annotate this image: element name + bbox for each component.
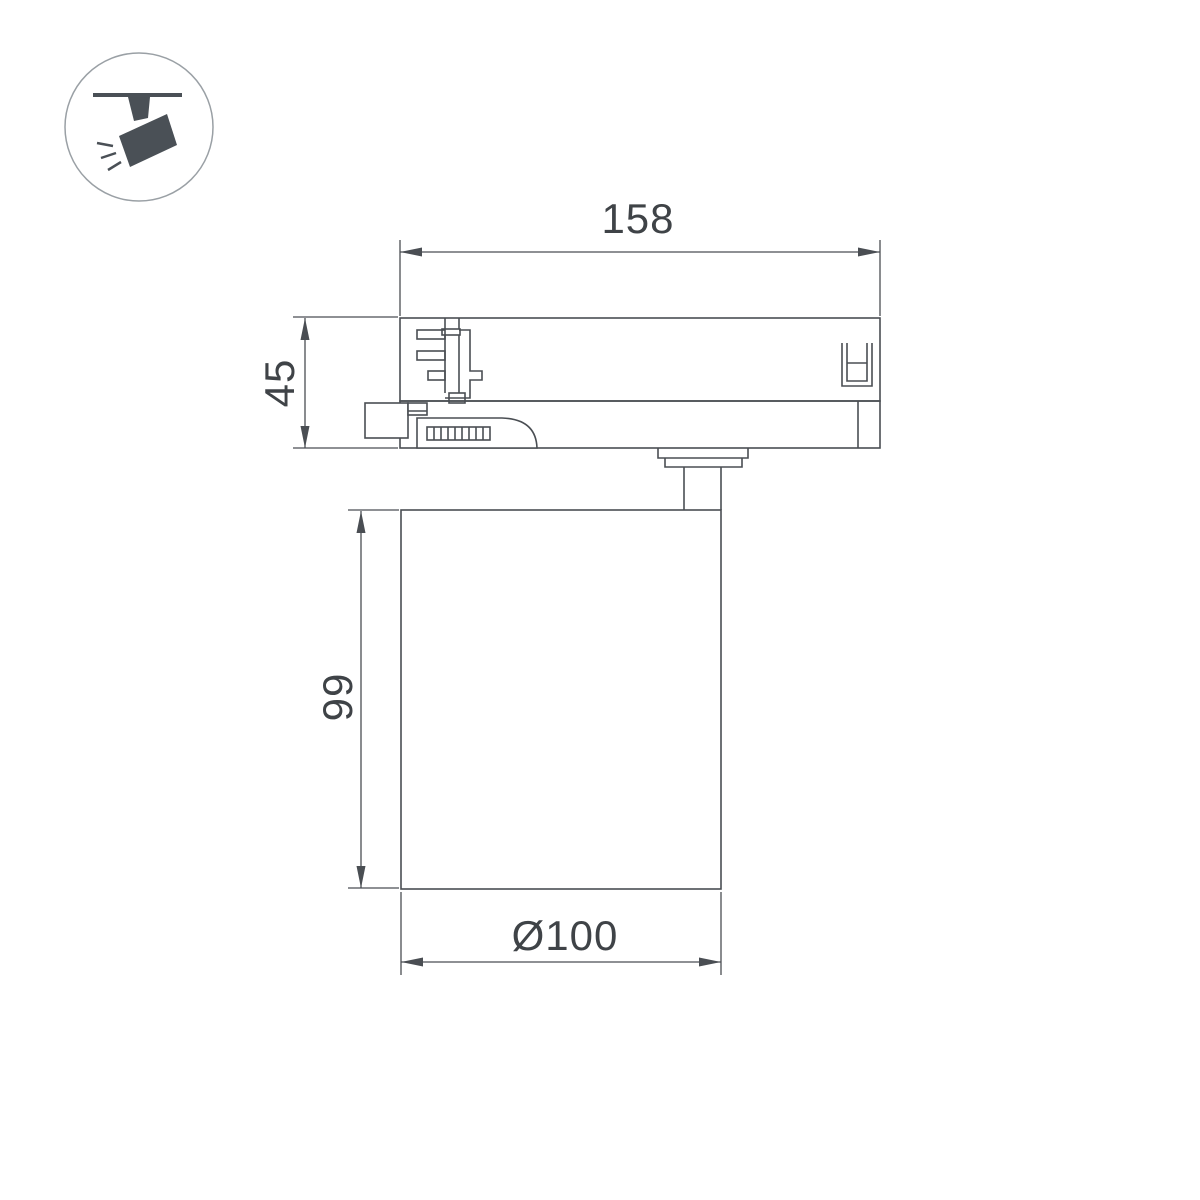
contact-prong xyxy=(417,351,445,360)
u-clip xyxy=(842,343,872,386)
arrowhead xyxy=(400,248,422,257)
arrowhead xyxy=(357,511,366,533)
lamp-body xyxy=(401,510,721,889)
u-clip-inner xyxy=(847,343,867,381)
contact-prong xyxy=(428,371,445,380)
contact-prong xyxy=(417,330,445,339)
dimension-drawing: 158 45 99 Ø100 xyxy=(0,0,1200,1200)
mount-step-upper xyxy=(658,448,748,458)
fixture-outline xyxy=(365,318,880,889)
dim-label-body-height: 99 xyxy=(314,673,361,722)
gimbal-mount xyxy=(658,448,748,510)
dimension-labels: 158 45 99 Ø100 xyxy=(256,195,675,959)
arrowhead xyxy=(357,866,366,888)
contact-assembly xyxy=(417,318,482,403)
dimension-lines xyxy=(293,240,880,975)
dimension-arrows xyxy=(301,248,881,967)
dim-label-adapter-height: 45 xyxy=(256,359,303,408)
arrowhead xyxy=(699,958,721,967)
icon-ceiling-track xyxy=(93,93,182,97)
lock-lever xyxy=(365,403,408,438)
adapter-upper-housing xyxy=(400,318,880,401)
arrowhead xyxy=(301,318,310,340)
slider-housing xyxy=(417,418,537,448)
drawing-page: 158 45 99 Ø100 xyxy=(0,0,1200,1200)
category-icon xyxy=(65,53,213,201)
dim-label-length: 158 xyxy=(601,195,674,242)
arrowhead xyxy=(401,958,423,967)
dim-label-diameter: Ø100 xyxy=(512,912,619,959)
lock-lever-group xyxy=(365,403,537,448)
arrowhead xyxy=(301,426,310,448)
contact-bracket xyxy=(445,330,482,398)
lever-clip xyxy=(408,403,427,415)
mount-step-lower xyxy=(665,458,742,467)
arrowhead xyxy=(858,248,880,257)
